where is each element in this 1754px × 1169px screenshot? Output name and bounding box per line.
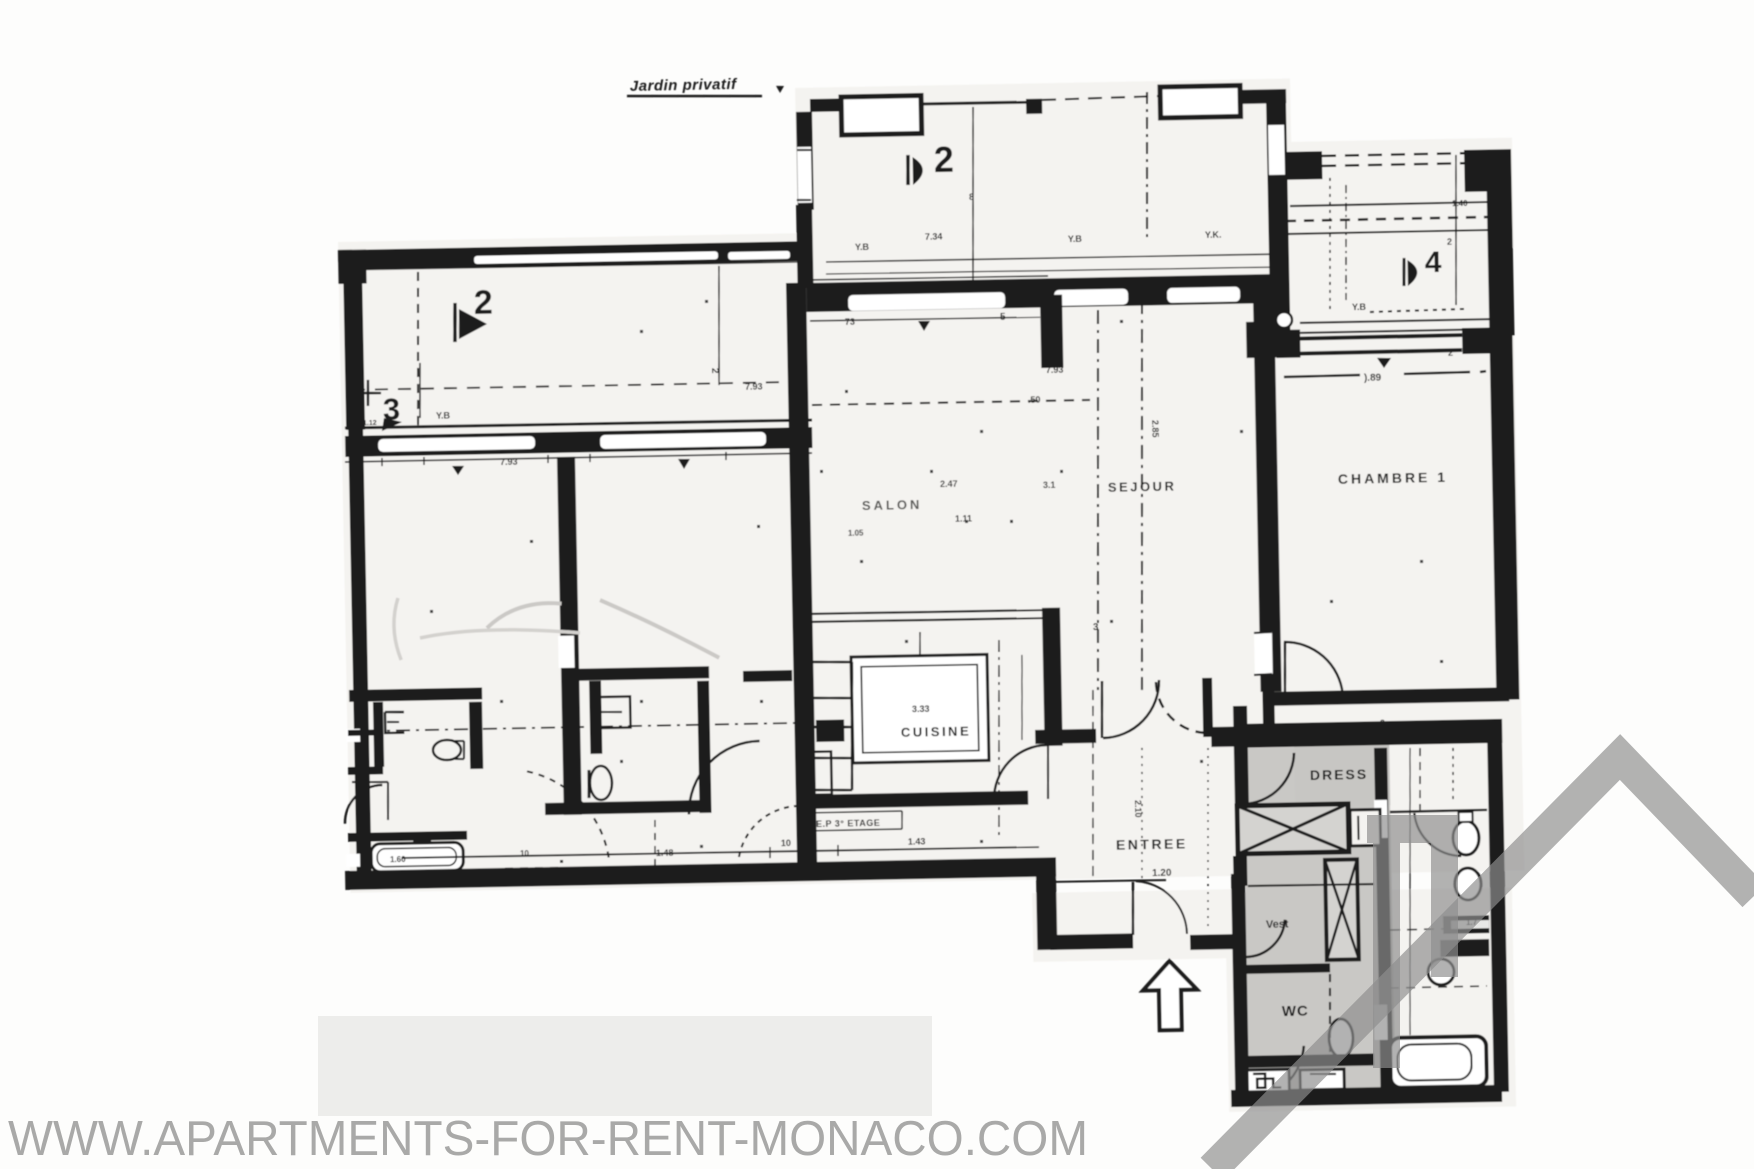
svg-text:CHAMBRE 1: CHAMBRE 1 [1338, 469, 1449, 487]
svg-text:7.34: 7.34 [925, 232, 943, 242]
svg-text:5: 5 [1000, 312, 1006, 323]
svg-text:2: 2 [933, 139, 954, 180]
svg-text:1.05: 1.05 [848, 529, 864, 538]
svg-text:2.10: 2.10 [1133, 800, 1143, 818]
svg-text:2.47: 2.47 [940, 479, 958, 489]
svg-text:2.85: 2.85 [1150, 420, 1160, 438]
svg-text:Y.B: Y.B [1352, 302, 1367, 312]
svg-text:8: 8 [969, 192, 974, 202]
svg-text:E.P 3° ETAGE: E.P 3° ETAGE [816, 818, 880, 829]
svg-text:1.43: 1.43 [908, 837, 926, 847]
svg-text:73: 73 [845, 317, 855, 327]
svg-text:1.60: 1.60 [390, 855, 406, 864]
svg-text:1.40: 1.40 [1452, 199, 1468, 208]
svg-text:1.20: 1.20 [1152, 868, 1172, 879]
svg-text:1.11: 1.11 [955, 514, 972, 524]
svg-text:Y.B: Y.B [1068, 234, 1083, 244]
svg-text:SEJOUR: SEJOUR [1108, 479, 1177, 495]
svg-text:1.29: 1.29 [1437, 730, 1455, 740]
svg-text:SALON: SALON [862, 497, 923, 513]
svg-text:DRESS: DRESS [1310, 766, 1369, 783]
svg-text:3: 3 [1093, 622, 1099, 633]
svg-text:2: 2 [473, 284, 493, 322]
svg-text:2: 2 [1448, 348, 1453, 358]
svg-text:10: 10 [781, 838, 791, 848]
svg-text:).89: ).89 [1364, 373, 1382, 384]
svg-text:CUISINE: CUISINE [901, 724, 972, 740]
svg-text:7.93: 7.93 [745, 382, 763, 392]
svg-text:4: 4 [1424, 246, 1442, 279]
svg-text:10: 10 [520, 849, 530, 858]
svg-text:WWW.APARTMENTS-FOR-RENT-MONACO: WWW.APARTMENTS-FOR-RENT-MONACO.COM [8, 1112, 1088, 1166]
svg-text:1.48: 1.48 [656, 848, 674, 858]
svg-text:Y.B: Y.B [855, 242, 870, 252]
svg-text:WC: WC [1282, 1003, 1309, 1021]
svg-text:3.1: 3.1 [1043, 480, 1056, 490]
svg-text:Y.B: Y.B [436, 411, 451, 421]
svg-text:Jardin privatif: Jardin privatif [630, 76, 739, 95]
svg-text:3.33: 3.33 [912, 704, 930, 714]
svg-text:1.12: 1.12 [363, 420, 377, 427]
svg-text:2: 2 [1447, 237, 1452, 247]
svg-text:2: 2 [709, 368, 720, 374]
svg-text:Vest: Vest [1266, 919, 1289, 931]
svg-text:ENTREE: ENTREE [1116, 836, 1188, 853]
svg-text:.50: .50 [1028, 395, 1041, 405]
svg-text:Y.K.: Y.K. [1205, 230, 1222, 240]
svg-text:7.93: 7.93 [500, 457, 518, 467]
